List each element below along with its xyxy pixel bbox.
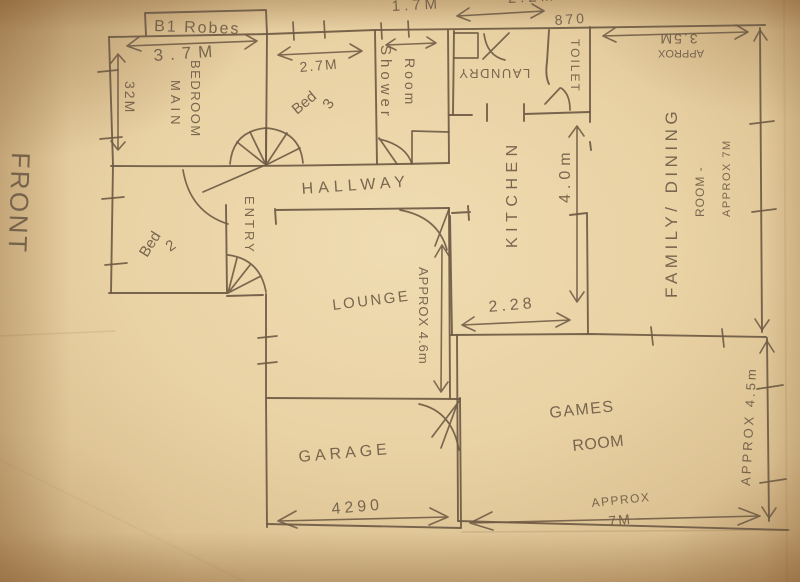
svg-text:B1 Robes: B1 Robes: [154, 18, 241, 38]
svg-text:7M: 7M: [608, 511, 633, 529]
svg-text:Room: Room: [402, 58, 418, 107]
svg-text:FAMILY/ DINING: FAMILY/ DINING: [662, 107, 681, 298]
svg-text:Shower: Shower: [377, 45, 394, 120]
svg-text:3.5M: 3.5M: [658, 31, 697, 47]
svg-text:4.0m: 4.0m: [557, 147, 574, 203]
svg-text:32M: 32M: [122, 81, 138, 114]
svg-text:BEDROOM: BEDROOM: [188, 60, 203, 138]
svg-text:TOILET: TOILET: [568, 39, 582, 93]
svg-text:LAUNDRY: LAUNDRY: [458, 66, 530, 81]
svg-text:KITCHEN: KITCHEN: [504, 139, 521, 248]
svg-text:1.7M: 1.7M: [391, 0, 441, 15]
svg-text:FRONT: FRONT: [2, 152, 36, 255]
svg-text:870: 870: [554, 10, 587, 28]
svg-text:2.7M: 2.7M: [299, 56, 339, 75]
svg-text:APPROX 7M: APPROX 7M: [721, 139, 733, 217]
svg-text:APPROX 4.6m: APPROX 4.6m: [416, 267, 431, 365]
svg-text:ROOM -: ROOM -: [693, 166, 707, 217]
svg-text:ENTRY: ENTRY: [242, 196, 257, 255]
svg-text:MAIN: MAIN: [168, 80, 183, 129]
svg-text:APPROX: APPROX: [657, 47, 704, 59]
